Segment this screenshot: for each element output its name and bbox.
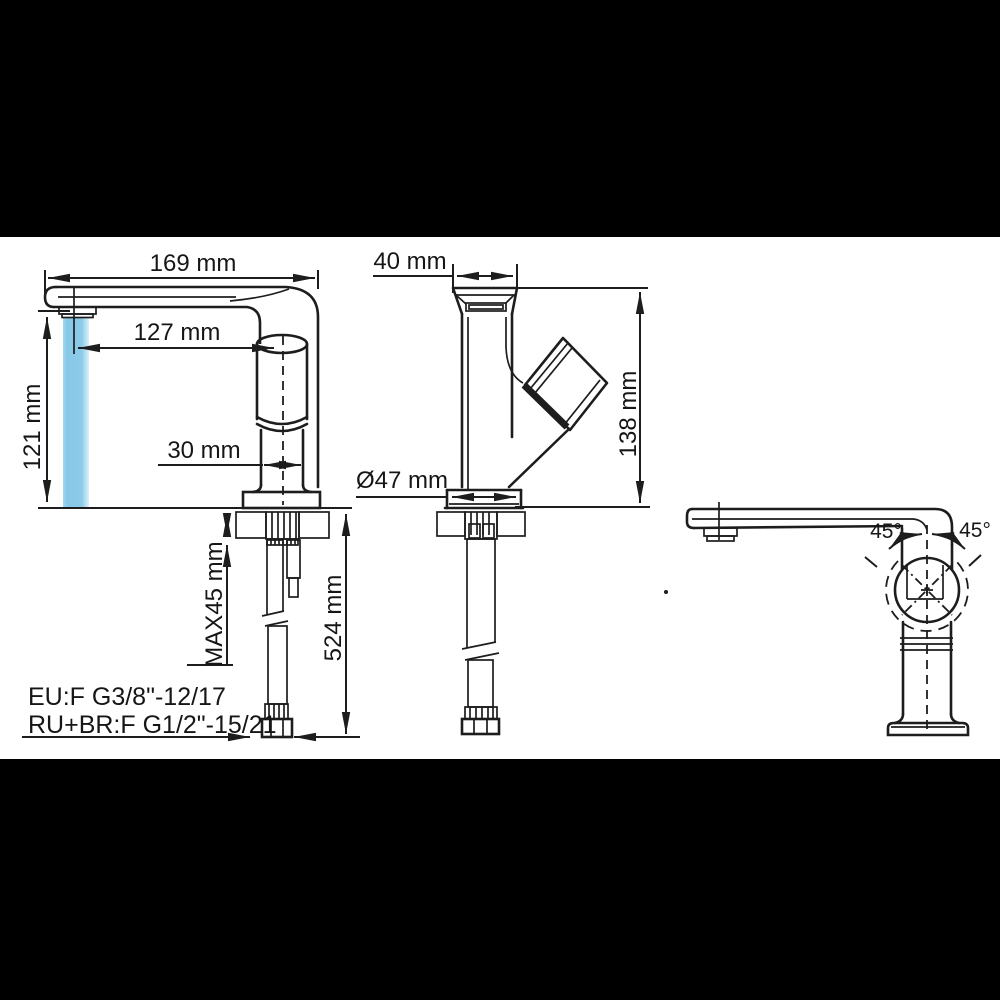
- dim-base-diameter: Ø47 mm: [356, 467, 516, 497]
- total-height-label: 138 mm: [615, 371, 642, 458]
- rotation-right-label: 45°: [959, 519, 991, 542]
- dim-spout-height: 121 mm: [19, 311, 70, 502]
- letterbox-top: [0, 0, 1000, 237]
- rotation-left-label: 45°: [870, 520, 902, 543]
- side-view: 40 mm: [356, 248, 650, 734]
- screenshot-stage: 169 mm 127 mm 121 mm 30 mm: [0, 0, 1000, 1000]
- ink-speck: [664, 590, 668, 594]
- faucet-technical-drawing: 169 mm 127 mm 121 mm 30 mm: [0, 237, 1000, 759]
- spout-width-label: 40 mm: [373, 248, 446, 275]
- drawing-paper: 169 mm 127 mm 121 mm 30 mm: [0, 237, 1000, 759]
- dim-spout-width: 40 mm: [373, 248, 517, 293]
- note-eu: EU:F G3/8"-12/17: [28, 683, 226, 711]
- letterbox-bottom: [0, 759, 1000, 1000]
- side-handle: [524, 338, 607, 430]
- dim-body-width: 30 mm: [158, 437, 301, 465]
- front-view: 169 mm 127 mm 121 mm 30 mm: [19, 250, 360, 739]
- rotation-arcs: 45° 45°: [865, 519, 991, 567]
- dim-spout-reach: 127 mm: [78, 319, 274, 348]
- water-stream: [63, 317, 89, 508]
- body-width-label: 30 mm: [167, 437, 240, 464]
- spout-height-label: 121 mm: [19, 384, 46, 471]
- overall-length-label: 169 mm: [150, 250, 237, 277]
- side-hose: [462, 539, 499, 734]
- hose-length-label: 524 mm: [320, 575, 347, 662]
- dim-max-mounting: MAX45 mm: [187, 515, 233, 667]
- dim-hose-length: 524 mm: [320, 514, 347, 734]
- max-mounting-label: MAX45 mm: [201, 541, 228, 666]
- swivel-view: 45° 45°: [664, 502, 991, 735]
- dim-overall-length: 169 mm: [45, 250, 318, 297]
- base-diameter-label: Ø47 mm: [356, 467, 448, 494]
- note-ru-br: RU+BR:F G1/2"-15/21: [28, 711, 277, 739]
- spout-reach-label: 127 mm: [134, 319, 221, 346]
